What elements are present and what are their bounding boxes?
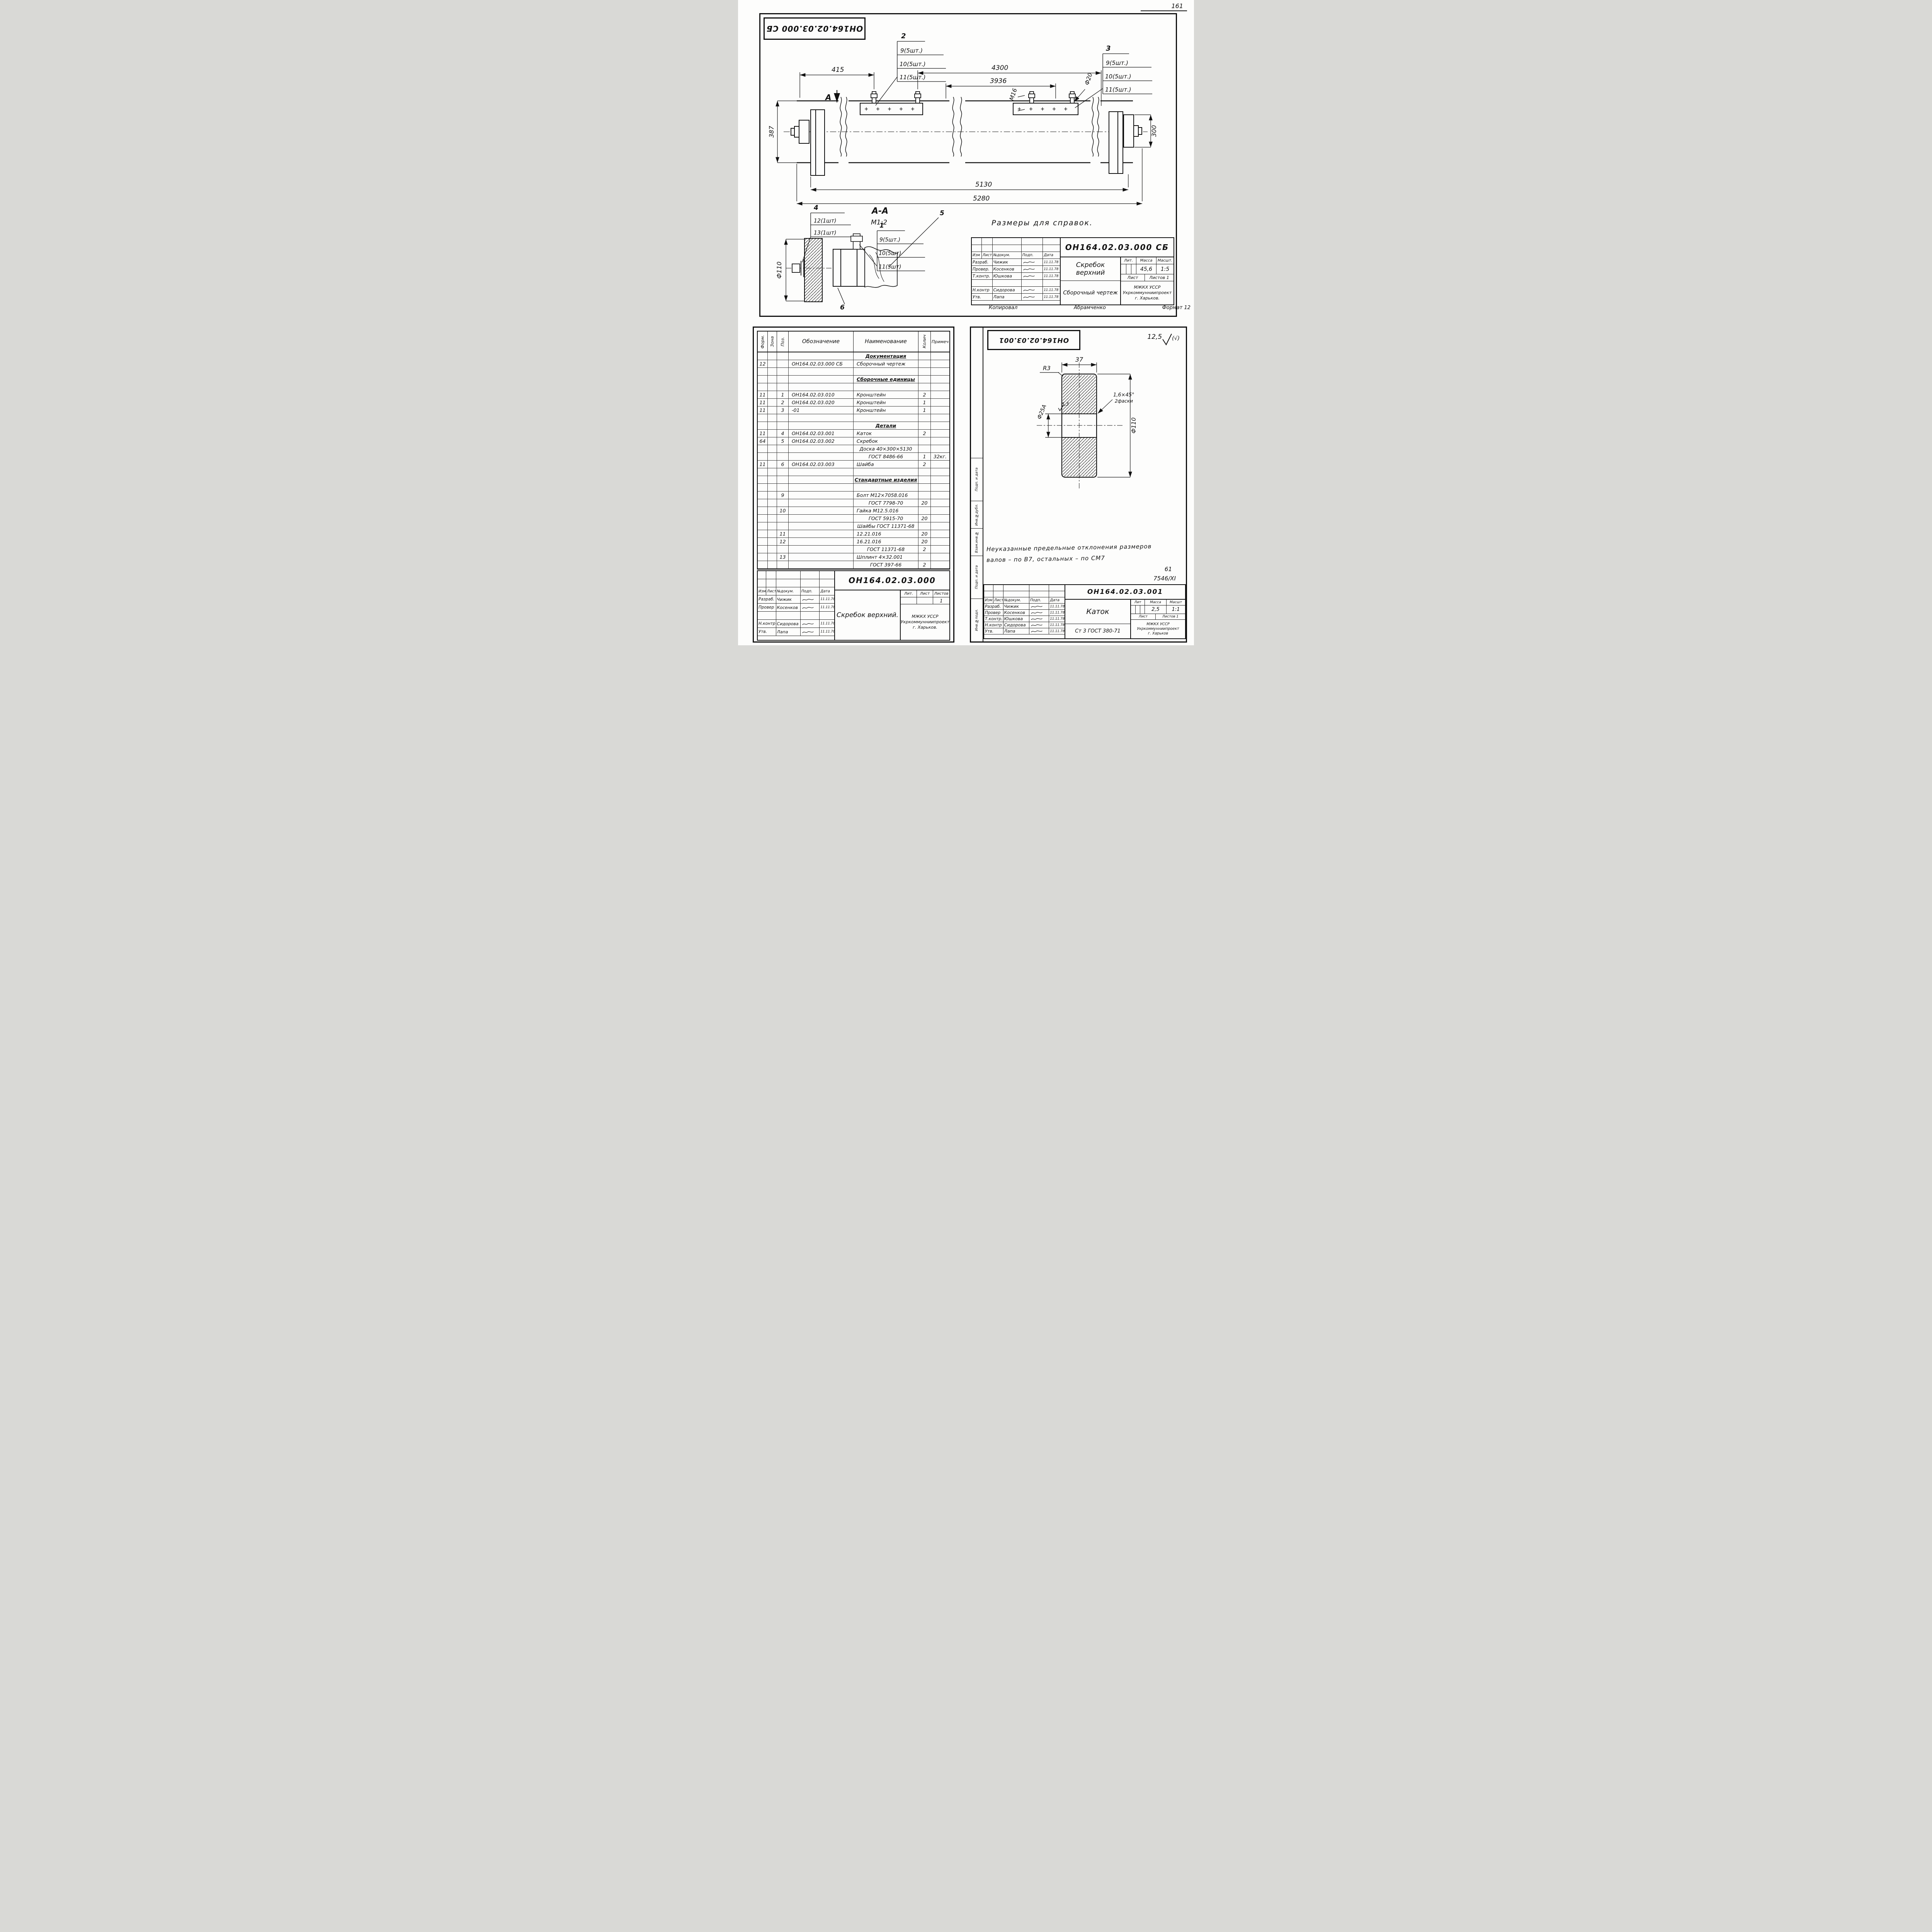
margin-cell: Инв.№дубл.	[971, 501, 983, 528]
spec-cell	[789, 522, 854, 530]
spec-cell	[768, 484, 777, 491]
spec-cell	[918, 507, 931, 514]
tolerance-note-2: валов – по В7, остальных – по СМ7	[986, 553, 1180, 564]
spec-rows: Документация12ОН164.02.03.000 СБСборочны…	[758, 352, 949, 569]
signature-cell: Провер	[758, 604, 776, 611]
signature-cell: №докум.	[993, 252, 1022, 259]
spec-cell	[918, 476, 931, 483]
signature-cell: 11.11.78	[820, 595, 834, 603]
signature-cell: Чижик	[1003, 604, 1029, 609]
spec-cell	[854, 484, 918, 491]
col-form: Форм.	[760, 335, 765, 349]
sheet-label: Лист	[917, 590, 933, 597]
signature-scribble	[801, 620, 820, 628]
detail-title-block: ИзмЛист№докум.Подп.ДатаРазраб.Чижик11.11…	[983, 584, 1186, 639]
spec-cell	[931, 484, 949, 491]
spec-cell	[931, 461, 949, 468]
signature-cell: Подп.	[1029, 597, 1049, 603]
margin-label: Взам.инв.№	[975, 531, 979, 553]
bolt-icon	[1027, 92, 1036, 103]
spec-cell	[931, 530, 949, 537]
spec-cell	[758, 546, 768, 553]
signature-cell: Чижик	[776, 595, 801, 603]
spec-cell	[777, 360, 789, 367]
spec-row	[758, 414, 949, 422]
signature-cell	[1022, 245, 1043, 252]
spec-row: ГОСТ 397-662	[758, 561, 949, 569]
spec-cell: 6	[777, 461, 789, 468]
spec-cell: Кронштейн	[854, 406, 918, 414]
spec-row: 1216.21.01620	[758, 538, 949, 546]
spec-table: Форм. Зона Поз. Обозначение Наименование…	[757, 331, 950, 570]
signature-scribble	[1029, 628, 1049, 634]
signature-cell: Провер.	[972, 266, 993, 272]
spec-cell	[789, 368, 854, 375]
spec-cell	[758, 383, 768, 391]
signature-cell	[1029, 591, 1049, 597]
spec-cell	[918, 445, 931, 452]
spec-row: ГОСТ 8486-66132кг.	[758, 453, 949, 461]
spec-cell: 2	[918, 430, 931, 437]
signature-row	[758, 612, 834, 620]
signature-cell: Лист	[982, 252, 993, 259]
spec-cell	[768, 406, 777, 414]
spec-cell	[758, 368, 768, 375]
signature-cell	[758, 579, 766, 587]
dim-5130: 5130	[975, 181, 992, 189]
scale-label: Масшт.	[1156, 257, 1173, 264]
spec-cell	[777, 546, 789, 553]
spec-cell	[777, 476, 789, 483]
signature-row: ПроверКосенков11.11.78	[984, 610, 1065, 616]
spec-cell	[789, 538, 854, 545]
spec-cell	[789, 352, 854, 360]
signature-row	[972, 238, 1060, 245]
dim-3936: 3936	[990, 77, 1007, 85]
spec-cell	[931, 399, 949, 406]
signature-cell	[776, 612, 801, 619]
signature-cell	[993, 585, 1003, 591]
signature-cell: Лист	[993, 597, 1003, 603]
signature-cell	[820, 579, 834, 587]
spec-cell	[758, 476, 768, 483]
spec-cell	[768, 376, 777, 383]
spec-cell: 1	[918, 399, 931, 406]
signature-cell: Косенков	[993, 266, 1022, 272]
spec-cell: Болт М12×7058.016	[854, 492, 918, 499]
margin-column: Инв.№подл.Подп. и датаВзам.инв.№Инв.№дуб…	[971, 328, 983, 641]
signature-scribble	[1022, 266, 1043, 272]
spec-cell: Шайба	[854, 461, 918, 468]
spec-cell	[758, 453, 768, 460]
spec-cell	[918, 414, 931, 422]
sheet-label: Лист	[1121, 274, 1145, 281]
roughness-check-icon	[1162, 333, 1172, 345]
scale-value: 1:5	[1156, 264, 1173, 274]
col-designation: Обозначение	[789, 332, 854, 352]
spec-row: Документация	[758, 352, 949, 360]
spec-row: Доска 40×300×5130	[758, 445, 949, 453]
spec-cell: ОН164.02.03.020	[789, 399, 854, 406]
spec-cell	[768, 492, 777, 499]
spec-cell	[768, 530, 777, 537]
spec-cell	[789, 507, 854, 514]
signature-cell: 11.11.78	[1049, 616, 1065, 622]
signature-cell: Лист	[766, 587, 776, 595]
callout-6-num: 6	[840, 304, 845, 311]
spec-cell: ГОСТ 5915-70	[854, 515, 918, 522]
signature-row	[972, 280, 1060, 287]
spec-cell	[758, 445, 768, 452]
spec-row	[758, 368, 949, 376]
spec-row: 114ОН164.02.03.001Каток2	[758, 430, 949, 437]
spec-cell	[931, 406, 949, 414]
spec-row: 645ОН164.02.03.002Скребок	[758, 437, 949, 445]
signature-cell: Дата	[820, 587, 834, 595]
signature-cell: 11.11.78	[1049, 610, 1065, 616]
spec-cell: ГОСТ 7798-70	[854, 499, 918, 507]
callout-6-leader	[838, 288, 845, 304]
callout-4-line: 12(1шт)	[814, 218, 837, 224]
spec-cell	[758, 507, 768, 514]
signature-cell: №докум.	[776, 587, 801, 595]
spec-cell: 64	[758, 437, 768, 445]
spec-cell	[789, 445, 854, 452]
signature-cell	[1029, 585, 1049, 591]
page-number: 161	[1141, 2, 1187, 11]
signature-cell	[776, 579, 801, 587]
spec-cell: 13	[777, 553, 789, 561]
bore-roughness: 6,3	[1061, 401, 1069, 407]
spec-cell	[918, 484, 931, 491]
margin-cell: Подп. и дата	[971, 458, 983, 501]
spec-cell: 4	[777, 430, 789, 437]
signature-scribble	[1022, 273, 1043, 279]
doc-number: ОН164.02.03.000 СБ	[1061, 238, 1173, 257]
spec-cell	[789, 414, 854, 422]
signature-cell	[993, 238, 1022, 245]
signature-cell: 11.11.78	[1043, 294, 1060, 300]
spec-cell	[768, 468, 777, 476]
signature-row	[758, 579, 834, 587]
spec-row: ГОСТ 11371-682	[758, 546, 949, 553]
spec-cell: Доска 40×300×5130	[854, 445, 918, 452]
spec-cell: 3	[777, 406, 789, 414]
signature-cell	[972, 245, 982, 252]
signature-cell: Сидорова	[1003, 622, 1029, 628]
spec-cell	[777, 522, 789, 530]
mounting-plate-1	[860, 103, 923, 115]
col-zone: Зона	[770, 336, 775, 347]
col-note: Примеч	[931, 332, 949, 352]
spec-row: Стандартные изделия	[758, 476, 949, 484]
spec-cell	[789, 499, 854, 507]
spec-cell: 11	[758, 430, 768, 437]
spec-cell	[931, 507, 949, 514]
signature-cell	[1043, 245, 1060, 252]
drawing-page: 161 ОН164.02.03.000 СБ	[738, 0, 1194, 645]
spec-cell	[768, 399, 777, 406]
signature-row: Разраб.Чижик11.11.78	[972, 259, 1060, 266]
signature-cell: Юшкова	[1003, 616, 1029, 622]
sheets-label: Листов	[933, 590, 949, 597]
spec-cell	[918, 522, 931, 530]
spec-cell	[854, 414, 918, 422]
mark-code: 7546/ХI	[1153, 575, 1176, 582]
callout-3-line: 11(5шт.)	[1105, 86, 1131, 93]
spec-cell	[768, 437, 777, 445]
spec-cell	[789, 476, 854, 483]
signature-cell	[766, 579, 776, 587]
signature-row: Разраб.Чижик11.11.78	[758, 595, 834, 604]
assembly-title-block: ИзмЛист№докум.Подп.ДатаРазраб.Чижик11.11…	[971, 237, 1174, 305]
dim-5280: 5280	[973, 195, 990, 202]
signature-cell	[1049, 591, 1065, 597]
lit-label: Лит	[1131, 600, 1145, 605]
spec-cell	[768, 368, 777, 375]
spec-cell	[918, 437, 931, 445]
spec-cell: ГОСТ 8486-66	[854, 453, 918, 460]
spec-cell: 10	[777, 507, 789, 514]
spec-cell	[931, 492, 949, 499]
dim-387: 387	[768, 126, 775, 138]
signature-row: Изм.Лист№докум.Подп.Дата	[758, 587, 834, 595]
spec-cell	[758, 492, 768, 499]
spec-cell	[931, 561, 949, 568]
spec-cell	[758, 499, 768, 507]
signature-cell: Разраб.	[984, 604, 1003, 609]
spec-cell	[777, 515, 789, 522]
signature-cell: Разраб.	[758, 595, 776, 603]
signature-cell: Утв.	[984, 628, 1003, 634]
spec-cell	[768, 546, 777, 553]
spec-cell	[777, 445, 789, 452]
mass-value: 2,5	[1145, 605, 1167, 614]
scale-label: Масшт	[1167, 600, 1185, 605]
signature-cell	[984, 585, 993, 591]
spec-cell: 20	[918, 538, 931, 545]
doc-number: ОН164.02.03.000	[835, 571, 949, 590]
dim-r3: R3	[1043, 365, 1051, 372]
spec-cell: Сборочный чертеж	[854, 360, 918, 367]
sheets-label: Листов 1	[1156, 614, 1185, 619]
scale-value: 1:1	[1167, 605, 1185, 614]
spec-cell: 12	[777, 538, 789, 545]
signature-scribble	[801, 612, 820, 619]
spec-cell: 2	[918, 561, 931, 568]
signature-row: Утв.Лапа11.11.78	[758, 628, 834, 636]
spec-cell	[789, 546, 854, 553]
spec-cell: Детали	[854, 422, 918, 429]
spec-cell: Шплинт 4×32.001	[854, 553, 918, 561]
signature-row: ПроверКосенков11.11.78	[758, 604, 834, 612]
signature-cell: 11.11.78	[820, 604, 834, 611]
signature-cell: Косенков	[776, 604, 801, 611]
spec-cell	[777, 499, 789, 507]
spec-cell	[758, 414, 768, 422]
signature-cell: Косенков	[1003, 610, 1029, 616]
spec-cell	[931, 515, 949, 522]
spec-cell: Гайка М12.5.016	[854, 507, 918, 514]
spec-cell	[758, 376, 768, 383]
callout-2-num: 2	[901, 32, 906, 40]
margin-label: Инв.№дубл.	[975, 504, 979, 526]
spec-cell	[931, 476, 949, 483]
spec-cell: ГОСТ 11371-68	[854, 546, 918, 553]
spec-cell	[758, 522, 768, 530]
signature-row: Провер.Косенков11.11.78	[972, 266, 1060, 273]
margin-cell: Подп. и дата	[971, 556, 983, 599]
spec-cell	[777, 484, 789, 491]
spec-cell	[931, 376, 949, 383]
dim-4300: 4300	[992, 64, 1008, 72]
spec-cell	[931, 499, 949, 507]
callout-3-line: 9(5шт.)	[1106, 60, 1128, 66]
spec-cell	[777, 383, 789, 391]
spec-cell	[777, 453, 789, 460]
organization: МЖКХ УССР Укркоммунниипроект г. Харьков.	[1121, 281, 1173, 304]
spec-cell	[758, 553, 768, 561]
dim-300: 300	[1150, 125, 1158, 137]
bolt-icon	[869, 92, 879, 103]
margin-cell: Взам.инв.№	[971, 528, 983, 556]
spec-cell	[789, 484, 854, 491]
spec-row	[758, 468, 949, 476]
spec-cell	[931, 414, 949, 422]
spec-cell: 5	[777, 437, 789, 445]
signature-cell: Сидорова	[776, 620, 801, 628]
signature-scribble	[1029, 610, 1049, 616]
spec-cell	[777, 468, 789, 476]
spec-cell	[931, 538, 949, 545]
signature-row	[984, 585, 1065, 591]
dim-f20: Ф20	[1083, 72, 1094, 86]
spec-cell	[758, 538, 768, 545]
spec-cell: ОН164.02.03.002	[789, 437, 854, 445]
signature-cell: Подп.	[801, 587, 820, 595]
sheets-label: Листов 1	[1145, 274, 1173, 281]
signature-cell	[820, 571, 834, 579]
roughness-paren: (√)	[1172, 335, 1180, 342]
spec-cell	[854, 368, 918, 375]
spec-cell: ГОСТ 397-66	[854, 561, 918, 568]
signature-row: Утв.Лапа11.11.78	[972, 294, 1060, 301]
spec-cell	[758, 422, 768, 429]
bolt-icon	[1068, 92, 1077, 103]
section-title: А-А	[871, 206, 888, 216]
spec-cell: 11	[758, 406, 768, 414]
mounting-plate-2	[1013, 103, 1078, 115]
spec-cell	[918, 422, 931, 429]
section-wall-hatched	[804, 238, 822, 302]
spec-row: Сборочные единицы	[758, 376, 949, 383]
spec-cell	[931, 468, 949, 476]
spec-cell	[777, 376, 789, 383]
margin-label: Подп. и дата	[975, 468, 979, 491]
signature-cell: 11.11.78	[1049, 622, 1065, 628]
spec-cell	[768, 391, 777, 398]
margin-label: Подп. и дата	[975, 565, 979, 589]
signature-cell: Лапа	[993, 294, 1022, 300]
spec-row: 1112.21.01620	[758, 530, 949, 538]
signature-cell: Н.контр	[758, 620, 776, 628]
signature-cell	[972, 238, 982, 245]
dim-415: 415	[832, 66, 844, 74]
spec-cell: 16.21.016	[854, 538, 918, 545]
spec-cell	[768, 453, 777, 460]
signature-cell: 11.11.78	[1043, 287, 1060, 293]
mark-61: 61	[1165, 566, 1172, 573]
spec-row: ГОСТ 5915-7020	[758, 515, 949, 522]
spec-cell	[931, 430, 949, 437]
spec-cell	[768, 515, 777, 522]
detail-sheet: Инв.№подл.Подп. и датаВзам.инв.№Инв.№дуб…	[970, 327, 1187, 643]
material: Ст 3 ГОСТ 380-71	[1065, 624, 1130, 638]
spec-cell	[768, 538, 777, 545]
signature-cell	[820, 612, 834, 619]
tolerance-note-1: Неуказанные предельные отклонения размер…	[986, 543, 1180, 553]
signature-cell: Подп.	[1022, 252, 1043, 259]
spec-cell	[768, 360, 777, 367]
spec-cell	[777, 414, 789, 422]
spec-cell: 2	[777, 399, 789, 406]
spec-cell: -01	[789, 406, 854, 414]
signature-cell	[766, 571, 776, 579]
chamfer-dim: 1,6×45°	[1113, 392, 1134, 398]
spec-cell	[777, 561, 789, 568]
spec-cell: 11	[758, 399, 768, 406]
signature-cell: Н.контр	[972, 287, 993, 293]
signature-row: Н.контрСидорова11.11.78	[758, 620, 834, 628]
signature-scribble	[1022, 259, 1043, 265]
spec-cell	[768, 445, 777, 452]
signature-scribble	[1022, 294, 1043, 300]
spec-cell	[758, 530, 768, 537]
callout-1-line: 10(5шт)	[879, 250, 901, 257]
spec-row: 116ОН164.02.03.003Шайба2	[758, 461, 949, 468]
lit-label: Лит.	[1121, 257, 1136, 264]
signature-cell: Дата	[1043, 252, 1060, 259]
spec-cell: Сборочные единицы	[854, 376, 918, 383]
part-name: Скребок верхний	[1061, 257, 1120, 281]
spec-cell: 20	[918, 499, 931, 507]
callout-2-line: 11(5шт.)	[900, 74, 926, 81]
signature-row: Разраб.Чижик11.11.78	[984, 604, 1065, 610]
left-bracket-roller	[791, 110, 825, 175]
dimension-lines	[777, 70, 1151, 204]
signature-cell	[982, 238, 993, 245]
spec-row: 113-01Кронштейн1	[758, 406, 949, 414]
signature-cell: Юшкова	[993, 273, 1022, 279]
part-name: Каток	[1065, 600, 1130, 624]
signature-cell	[1022, 238, 1043, 245]
spec-cell: 9	[777, 492, 789, 499]
spec-cell: 11	[777, 530, 789, 537]
signature-cell: 11.11.78	[1049, 604, 1065, 609]
spec-cell	[789, 376, 854, 383]
signature-row: Н.контрСидорова11.11.78	[984, 622, 1065, 628]
dim-f110: Ф110	[776, 262, 783, 279]
signature-scribble	[801, 604, 820, 611]
spec-cell: ОН164.02.03.010	[789, 391, 854, 398]
signature-grid: Изм.Лист№докум.Подп.ДатаРазраб.Чижик11.1…	[758, 571, 835, 640]
signature-cell	[801, 571, 820, 579]
spec-cell	[768, 522, 777, 530]
callout-1-line: 9(5шт.)	[879, 237, 900, 243]
spec-cell: 2	[918, 461, 931, 468]
spec-cell	[758, 484, 768, 491]
signature-scribble	[1022, 280, 1043, 286]
